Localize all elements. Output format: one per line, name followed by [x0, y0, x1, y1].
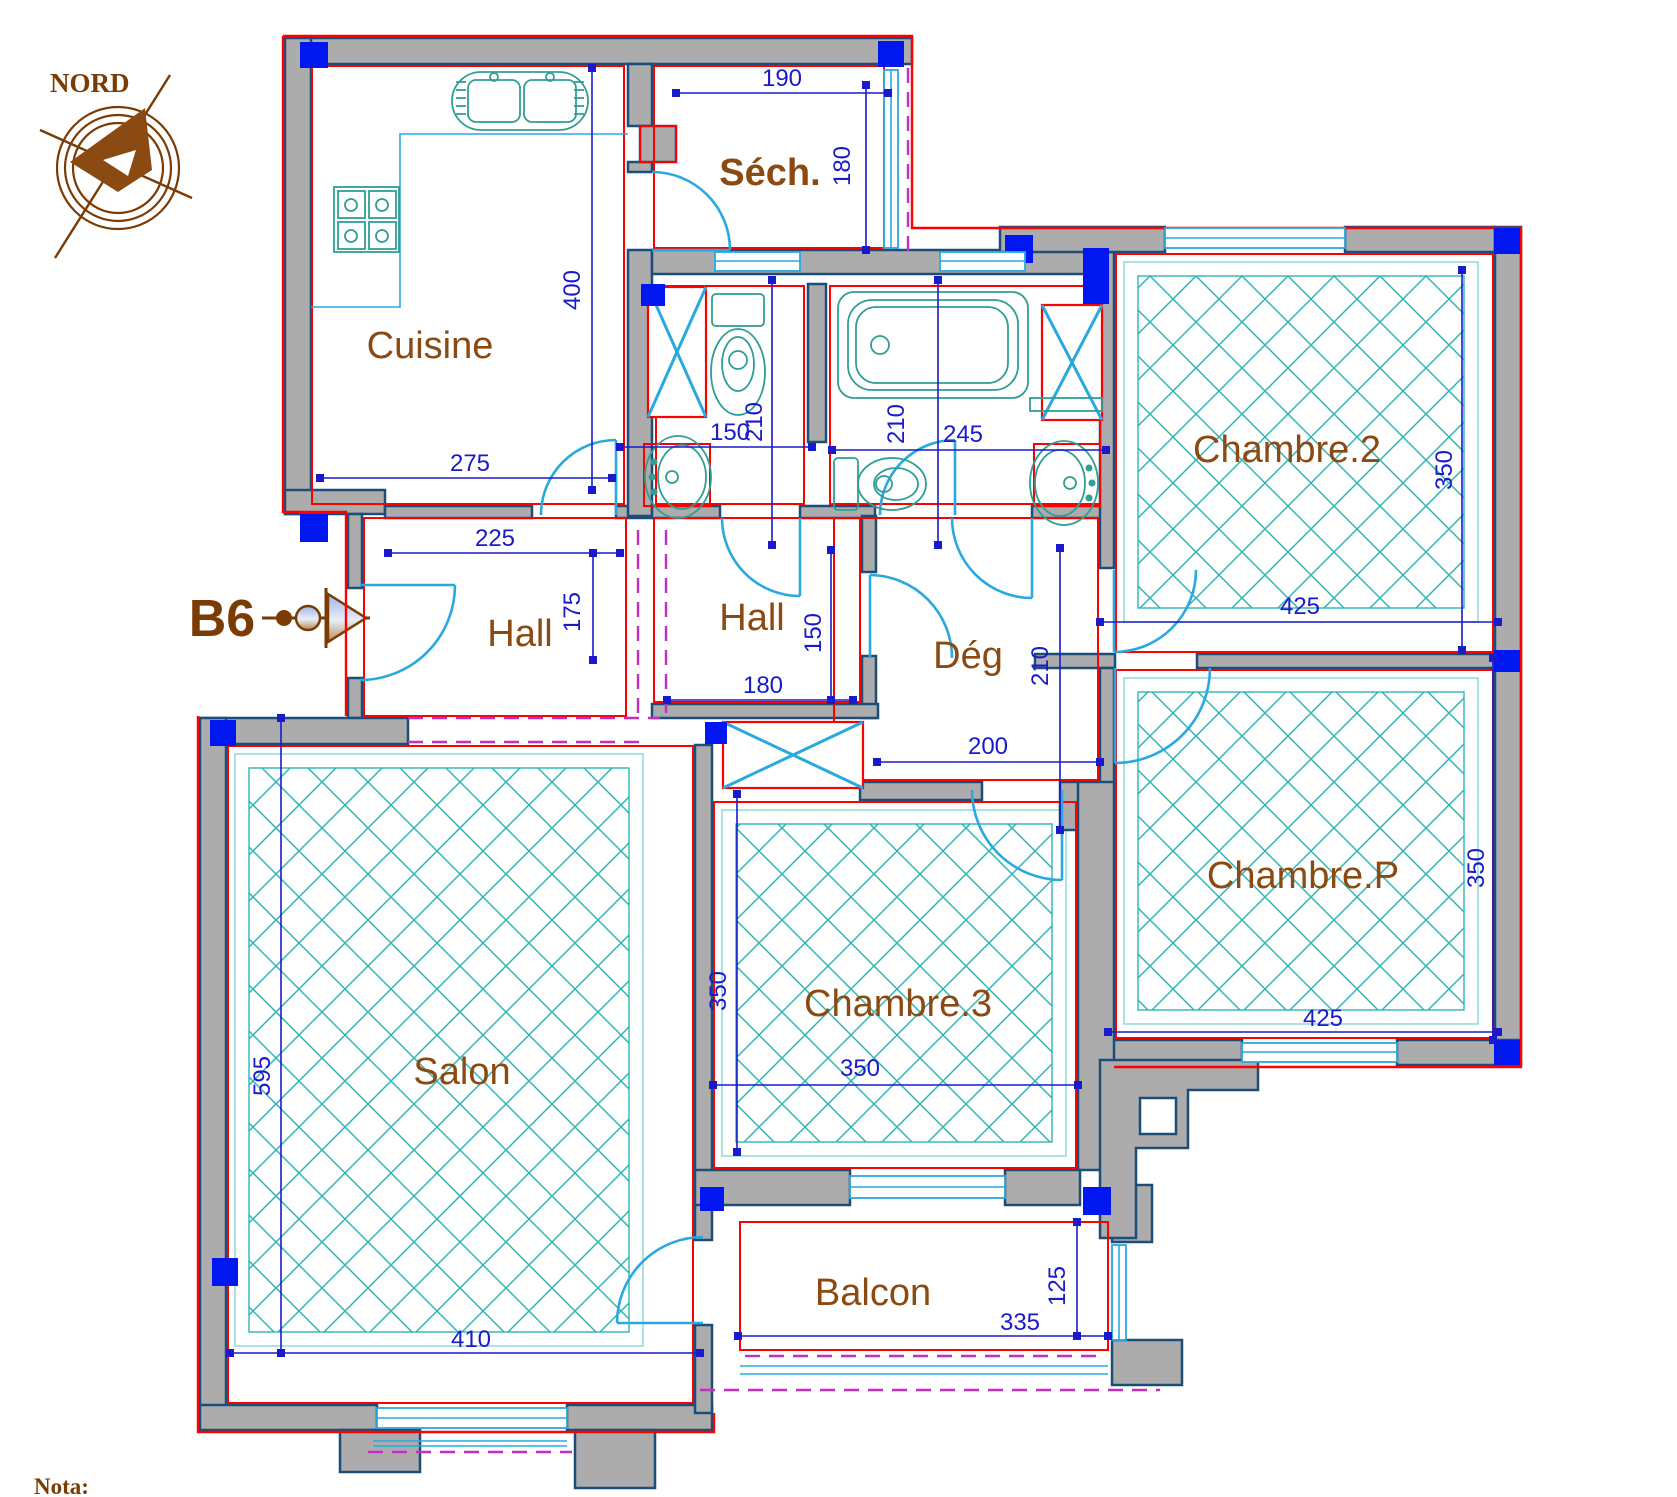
- room-label-hall2: Hall: [719, 597, 784, 639]
- room-label-chambre3: Chambre.3: [804, 983, 992, 1025]
- dim-salon-width: 410: [451, 1326, 491, 1353]
- dim-chambre3-width: 350: [840, 1055, 880, 1082]
- dim-sech-width: 190: [762, 65, 802, 92]
- toilet-icon: [711, 294, 765, 415]
- entrance-arrow-icon: [262, 588, 370, 648]
- dim-chambre2-height: 350: [1431, 450, 1458, 490]
- room-label-hall1: Hall: [487, 613, 552, 655]
- dim-sech-height: 180: [829, 146, 856, 186]
- room-label-balcon: Balcon: [815, 1272, 931, 1314]
- dim-hall2-height: 150: [800, 613, 827, 653]
- dim-chambrep-height: 350: [1463, 848, 1490, 888]
- compass-icon: [40, 75, 192, 258]
- room-label-chambre2: Chambre.2: [1193, 429, 1381, 471]
- entrance-label: B6: [189, 590, 255, 648]
- kitchen-sink-icon: [452, 72, 588, 130]
- dim-chambre2-width: 425: [1280, 593, 1320, 620]
- dim-bain-width: 245: [943, 421, 983, 448]
- room-label-cuisine: Cuisine: [367, 325, 494, 367]
- floor-plan-drawing: NORD B6: [0, 0, 1677, 1497]
- sech-door: [652, 172, 730, 250]
- stove-icon: [334, 187, 399, 252]
- dim-salon-height: 595: [249, 1056, 276, 1096]
- room-label-salon: Salon: [413, 1051, 510, 1093]
- dim-cuisine-height: 400: [559, 270, 586, 310]
- wc-door: [722, 518, 800, 596]
- room-label-deg: Dég: [933, 635, 1003, 677]
- room-label-chambrep: Chambre.P: [1207, 855, 1399, 897]
- floor-plan-page: NORD B6: [0, 0, 1677, 1497]
- dim-chambrep-width: 425: [1303, 1005, 1343, 1032]
- dim-balcon-width: 335: [1000, 1309, 1040, 1336]
- dim-hall1-width: 225: [475, 525, 515, 552]
- dim-wc-height: 210: [741, 402, 768, 442]
- north-label: NORD: [50, 68, 130, 98]
- dim-chambre3-height: 350: [705, 971, 732, 1011]
- entrance-door: [360, 585, 455, 680]
- dim-deg-width: 200: [968, 733, 1008, 760]
- balcon-door: [617, 1237, 703, 1323]
- deg-top-door: [952, 518, 1032, 598]
- note-label: Nota:: [34, 1474, 89, 1497]
- dim-hall2-width: 180: [743, 672, 783, 699]
- dim-bain-height: 210: [883, 404, 910, 444]
- dim-hall1-height: 175: [559, 592, 586, 632]
- dim-deg-height: 210: [1027, 646, 1054, 686]
- dim-cuisine-width: 275: [450, 450, 490, 477]
- dim-balcon-height: 125: [1044, 1266, 1071, 1306]
- room-label-sech: Séch.: [719, 152, 820, 194]
